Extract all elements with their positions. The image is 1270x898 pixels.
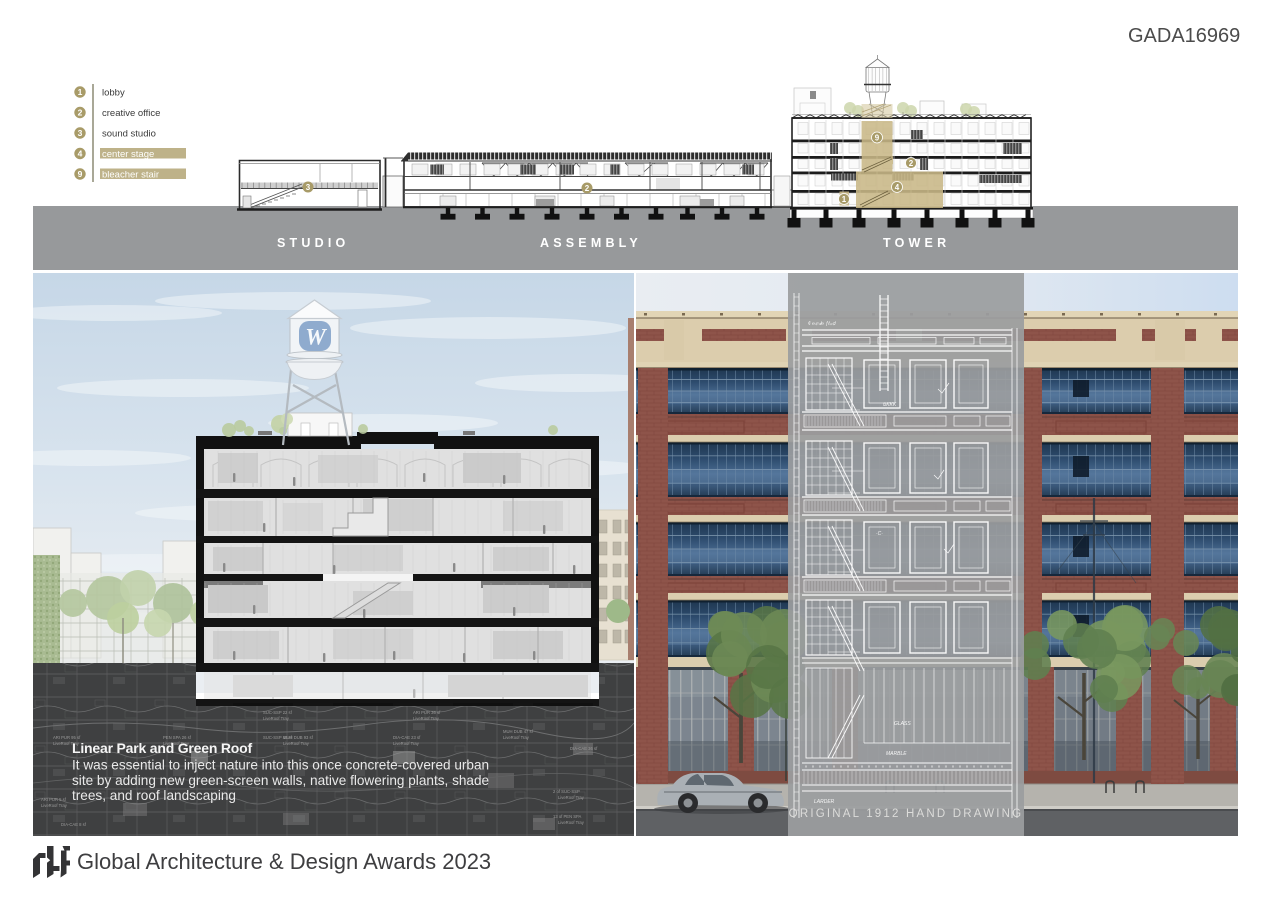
svg-text:4: 4	[895, 183, 900, 192]
svg-text:MARBLE: MARBLE	[886, 751, 907, 757]
svg-text:LiveRoof Tray: LiveRoof Tray	[558, 820, 585, 825]
svg-text:LiveRoof Tray: LiveRoof Tray	[413, 716, 440, 721]
svg-text:DIA-CAE 36 sf: DIA-CAE 36 sf	[570, 746, 598, 751]
svg-text:2: 2	[585, 184, 590, 193]
svg-text:LiveRoof Tray: LiveRoof Tray	[283, 741, 310, 746]
svg-text:LiveRoof Tray: LiveRoof Tray	[393, 741, 420, 746]
svg-text:DIA-CAE 23 sf: DIA-CAE 23 sf	[393, 735, 421, 740]
svg-text:ARI PUR 5 sf: ARI PUR 5 sf	[41, 797, 67, 802]
svg-text:13 of PEN SPA: 13 of PEN SPA	[553, 814, 582, 819]
svg-text:·C·: ·C·	[876, 531, 883, 537]
svg-text:3: 3	[306, 183, 311, 192]
svg-text:LiveRoof Tray: LiveRoof Tray	[263, 716, 290, 721]
svg-text:DIA-CAE 8 sf: DIA-CAE 8 sf	[61, 822, 87, 827]
svg-text:site by adding new green-scree: site by adding new green-screen walls, n…	[72, 773, 489, 788]
svg-text:¢ ℮ⅇℲ℮ ƒℓℴⅾ: ¢ ℮ⅇℲ℮ ƒℓℴⅾ	[808, 321, 836, 327]
svg-text:MUH DUB 47 sf: MUH DUB 47 sf	[503, 729, 534, 734]
svg-text:ORIGINAL 1912 HAND DRAWING: ORIGINAL 1912 HAND DRAWING	[789, 808, 1024, 820]
svg-text:Linear Park and Green Roof: Linear Park and Green Roof	[72, 740, 252, 756]
svg-text:⇅KKK: ⇅KKK	[882, 402, 897, 408]
svg-text:SUC-SSP 22 sf: SUC-SSP 22 sf	[263, 710, 293, 715]
svg-text:LARDER: LARDER	[814, 799, 835, 805]
svg-text:It was essential to inject nat: It was essential to inject nature into t…	[72, 758, 489, 773]
svg-text:W: W	[305, 325, 327, 350]
svg-text:1: 1	[842, 195, 847, 204]
svg-text:2: 2	[909, 159, 914, 168]
svg-text:LiveRoof Tray: LiveRoof Tray	[41, 803, 68, 808]
svg-text:9: 9	[875, 134, 880, 143]
svg-text:MUH DUB 93 sf: MUH DUB 93 sf	[283, 735, 314, 740]
svg-text:LiveRoof Tray: LiveRoof Tray	[558, 795, 585, 800]
svg-text:GLASS: GLASS	[894, 721, 911, 727]
svg-text:LiveRoof Tray: LiveRoof Tray	[503, 735, 530, 740]
svg-text:ARI PUR 36 sf: ARI PUR 36 sf	[413, 710, 441, 715]
svg-text:2 of SUC-SSP: 2 of SUC-SSP	[553, 789, 580, 794]
svg-text:trees, and roof landscaping: trees, and roof landscaping	[72, 788, 236, 803]
